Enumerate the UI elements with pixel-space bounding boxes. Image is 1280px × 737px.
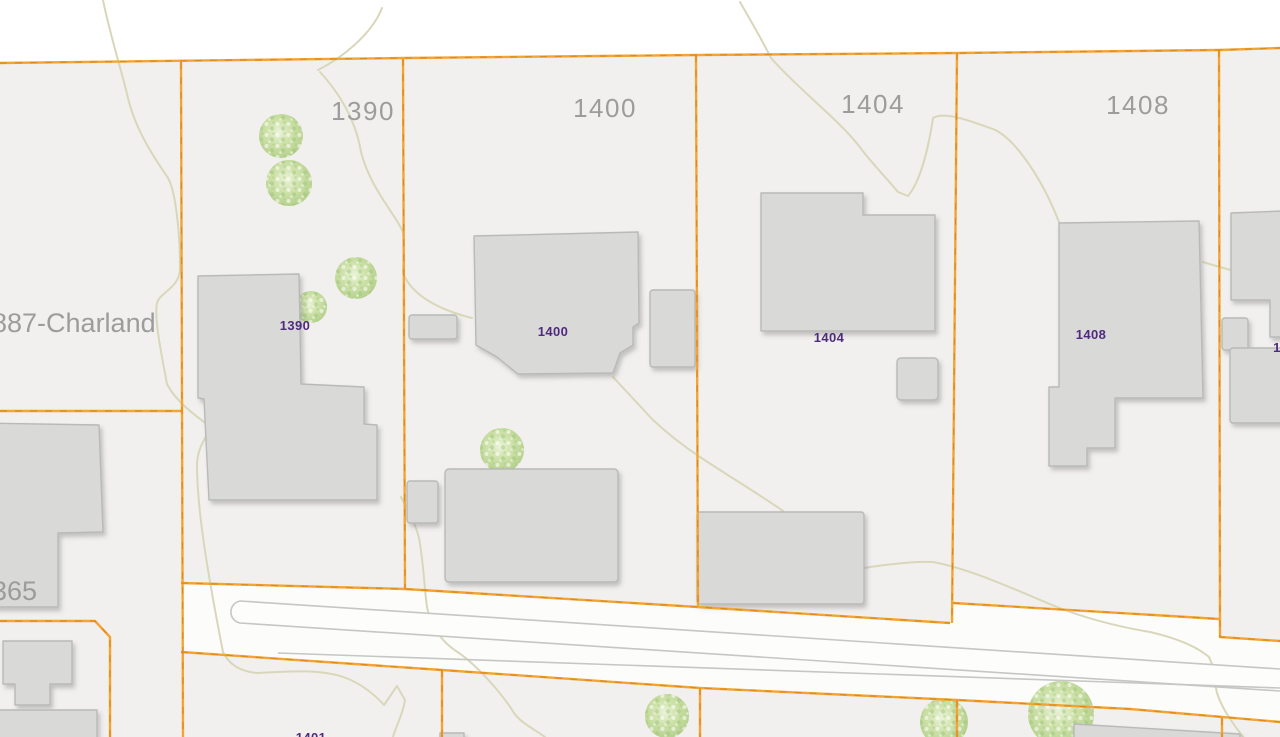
building-footprint[interactable]: [409, 315, 457, 339]
tree-icon: [480, 428, 524, 472]
building-footprint[interactable]: [474, 232, 639, 374]
building-footprint[interactable]: [440, 733, 464, 737]
building-footprint[interactable]: [1222, 318, 1248, 350]
building-footprint[interactable]: [445, 469, 618, 582]
tree-icon: [335, 257, 377, 299]
building-number-label: 1401: [296, 730, 327, 737]
building-footprint[interactable]: [697, 512, 864, 604]
building-number-label: 1400: [538, 324, 569, 339]
building-footprint[interactable]: [897, 358, 938, 400]
tree-icon: [266, 160, 312, 206]
lot-number-label: 1404: [841, 89, 905, 119]
building-footprint[interactable]: [650, 290, 695, 367]
tree-icon: [645, 694, 689, 737]
building-number-label: 1: [1273, 340, 1280, 355]
lot-number-label: 1390: [331, 96, 395, 126]
building-number-label: 1404: [814, 330, 845, 345]
building-footprint[interactable]: [407, 481, 438, 523]
address-label: 365: [0, 576, 37, 606]
address-label: 887-Charland: [0, 308, 156, 338]
building-number-label: 1408: [1076, 327, 1107, 342]
lot-number-label: 1400: [573, 93, 637, 123]
lot-number-label: 1408: [1106, 90, 1170, 120]
building-footprint[interactable]: [1230, 348, 1280, 423]
tree-icon: [259, 114, 303, 158]
building-footprint[interactable]: [0, 710, 97, 737]
building-number-label: 1390: [280, 318, 311, 333]
map-canvas[interactable]: 1390 1400 1404 1408 887-Charland 365 139…: [0, 0, 1280, 737]
